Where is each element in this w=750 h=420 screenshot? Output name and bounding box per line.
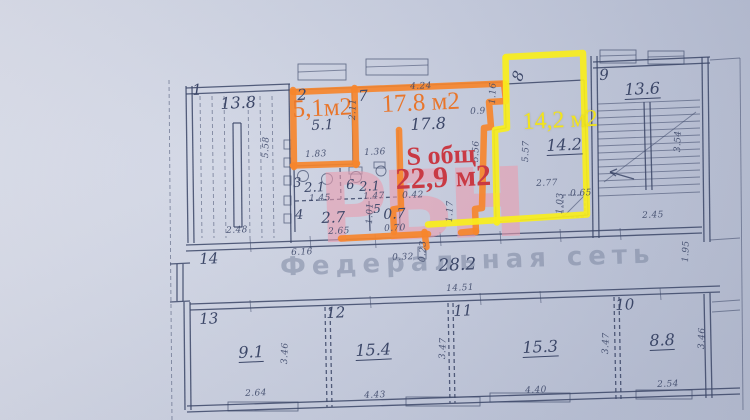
room1-number: 1 [192,83,202,98]
room1-value: 13.8 [220,94,256,112]
room7-area-label: 17.8 м2 [381,89,460,117]
dim-2-11: 2.11 [349,98,359,120]
dim-3-54: 3.54 [674,130,684,152]
dim-4-40: 4.40 [525,386,547,396]
dim-3-46-a: 3.46 [281,342,291,364]
dim-5-57: 5.57 [522,140,532,162]
room8-value: 14.2 [546,136,582,156]
dim-2-65: 2.65 [328,227,350,237]
room6-number: 6 [346,179,355,192]
dim-0-32: 0.32 [392,253,414,263]
room4-value: 2.7 [321,210,345,226]
dim-2-45: 2.45 [642,211,664,221]
room14-value: 28.2 [438,256,477,275]
total-area-line2: 22,9 м2 [395,161,492,195]
dim-0-65: 0.65 [570,189,592,199]
room8-area-label: 14,2 м2 [522,107,598,134]
dim-3-46-b: 3.46 [698,327,708,349]
dim-14-51: 14.51 [446,284,474,294]
room11-number: 11 [453,303,473,319]
dim-4-24: 4.24 [410,82,432,92]
dim-1-45: 1.45 [309,194,331,204]
dim-2-77: 2.77 [536,179,558,189]
room3-number: 3 [293,177,302,190]
room13-number: 13 [199,311,219,327]
room12-value: 15.4 [355,341,391,361]
room10-number: 10 [615,297,635,313]
dim-6-16: 6.16 [291,248,313,258]
dim-1-03: 1.03 [556,192,566,214]
dim-0-70: 0.70 [384,224,406,234]
dim-2-48: 2.48 [226,226,248,236]
room11-value: 15.3 [522,338,558,358]
room9-value: 13.6 [624,80,660,100]
dim-3-47-b: 3.47 [602,332,612,354]
dim-1-16: 1.16 [489,82,499,104]
room12-number: 12 [326,305,346,321]
dim-1-83: 1.83 [305,150,327,160]
dim-1-01: 1.01 [366,202,376,224]
room10-value: 8.8 [649,332,675,351]
dim-5-58: 5.58 [262,136,272,158]
dim-1-17: 1.17 [446,200,456,222]
room7-number: 7 [358,89,368,104]
room14-number: 14 [199,251,219,267]
room2-value: 5.1 [311,118,334,133]
room7-value: 17.8 [410,115,446,133]
dim-1-47: 1.47 [363,192,385,202]
dim-1-36: 1.36 [364,148,386,158]
dim-3-47-a: 3.47 [439,337,449,359]
dim-4-43: 4.43 [364,391,386,401]
plan-text-layer: 113.82.485.5825,1м25.11.831.362.11717.8 … [0,0,750,420]
room5-value: 0.7 [383,207,406,222]
room8-number: 8 [510,69,527,83]
room13-value: 9.1 [238,344,264,363]
dim-2-64: 2.64 [245,389,267,399]
dim-1-95: 1.95 [682,240,692,262]
dim-0-23: 0.23 [419,240,429,262]
dim-2-54: 2.54 [657,380,679,390]
room9-number: 9 [599,68,609,83]
room4-number: 4 [295,209,304,222]
dim-0-9: 0.9 [470,107,486,117]
